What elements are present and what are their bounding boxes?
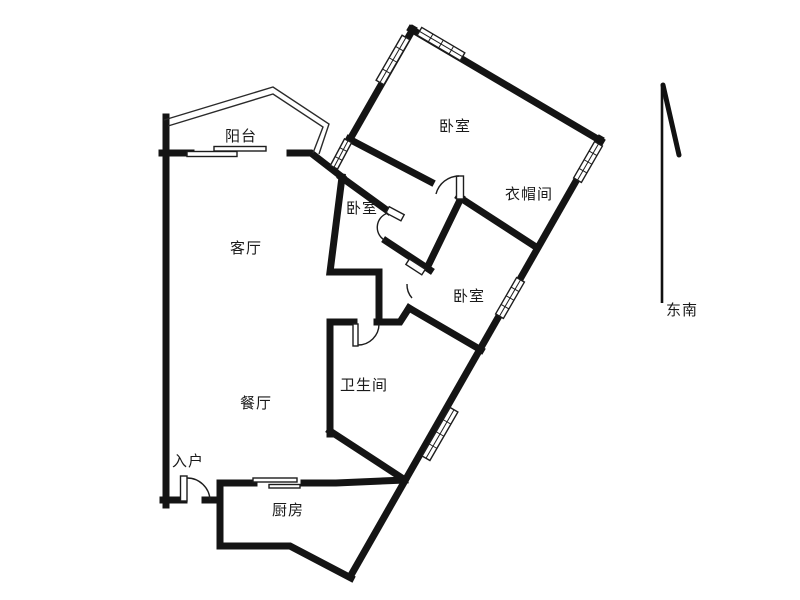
- door-arc: [436, 176, 459, 194]
- room-labels: 阳台 客厅 卧室 卧室 卧室 衣帽间 餐厅 卫生间 入户 厨房 东南: [172, 117, 698, 519]
- sliding-panel: [214, 147, 266, 152]
- door-bedroom-top-icon: [436, 176, 464, 199]
- interior-walls: [162, 139, 536, 483]
- room-label-cloakroom: 衣帽间: [505, 185, 553, 203]
- window-icon: [376, 35, 410, 85]
- wall-kitchen-outline: [205, 483, 351, 578]
- room-label-bedroom-right: 卧室: [453, 287, 485, 305]
- sliding-panel: [269, 485, 300, 489]
- door-leaf: [386, 207, 404, 221]
- room-label-bedroom-top: 卧室: [439, 117, 471, 135]
- door-leaf: [181, 476, 188, 501]
- room-label-bathroom: 卫生间: [340, 376, 388, 394]
- compass-barb: [663, 85, 679, 155]
- door-arc: [407, 284, 412, 298]
- wall-bathroom-bottom: [330, 431, 405, 480]
- window-icon: [330, 139, 351, 169]
- floor-plan-svg: 阳台 客厅 卧室 卧室 卧室 衣帽间 餐厅 卫生间 入户 厨房 东南: [0, 0, 800, 600]
- compass-label: 东南: [666, 301, 698, 319]
- door-arc: [358, 324, 379, 345]
- window-icon: [417, 27, 465, 60]
- sliding-door-kitchen-icon: [253, 478, 300, 488]
- door-bathroom-icon: [353, 324, 379, 346]
- sliding-panel: [187, 152, 237, 157]
- wall-bedroom-top-south-left: [349, 139, 431, 182]
- door-bedroom-middle-icon: [377, 207, 404, 241]
- room-label-dining-room: 餐厅: [240, 394, 272, 412]
- wall-cloakroom-south: [459, 197, 536, 247]
- room-label-balcony: 阳台: [225, 127, 257, 145]
- sliding-panel: [253, 478, 297, 482]
- room-label-entrance: 入户: [172, 452, 204, 470]
- window-icon: [496, 278, 525, 319]
- room-label-kitchen: 厨房: [272, 501, 304, 519]
- wall-bedroom-right-northwest: [428, 198, 461, 266]
- door-arc: [377, 213, 388, 241]
- wall-kitchen-top-right: [304, 480, 405, 483]
- room-label-living-room: 客厅: [230, 239, 262, 257]
- door-leaf: [353, 324, 358, 346]
- door-leaf: [457, 176, 464, 199]
- window-icon: [574, 142, 603, 183]
- windows: [330, 27, 602, 460]
- wall-bedroom-right-southwest: [409, 308, 481, 350]
- room-label-bedroom-middle: 卧室: [346, 199, 378, 217]
- compass-arrow-icon: [662, 85, 679, 303]
- floor-plan-canvas: 阳台 客厅 卧室 卧室 卧室 衣帽间 餐厅 卫生间 入户 厨房 东南: [0, 0, 800, 600]
- sliding-door-balcony-icon: [187, 147, 266, 157]
